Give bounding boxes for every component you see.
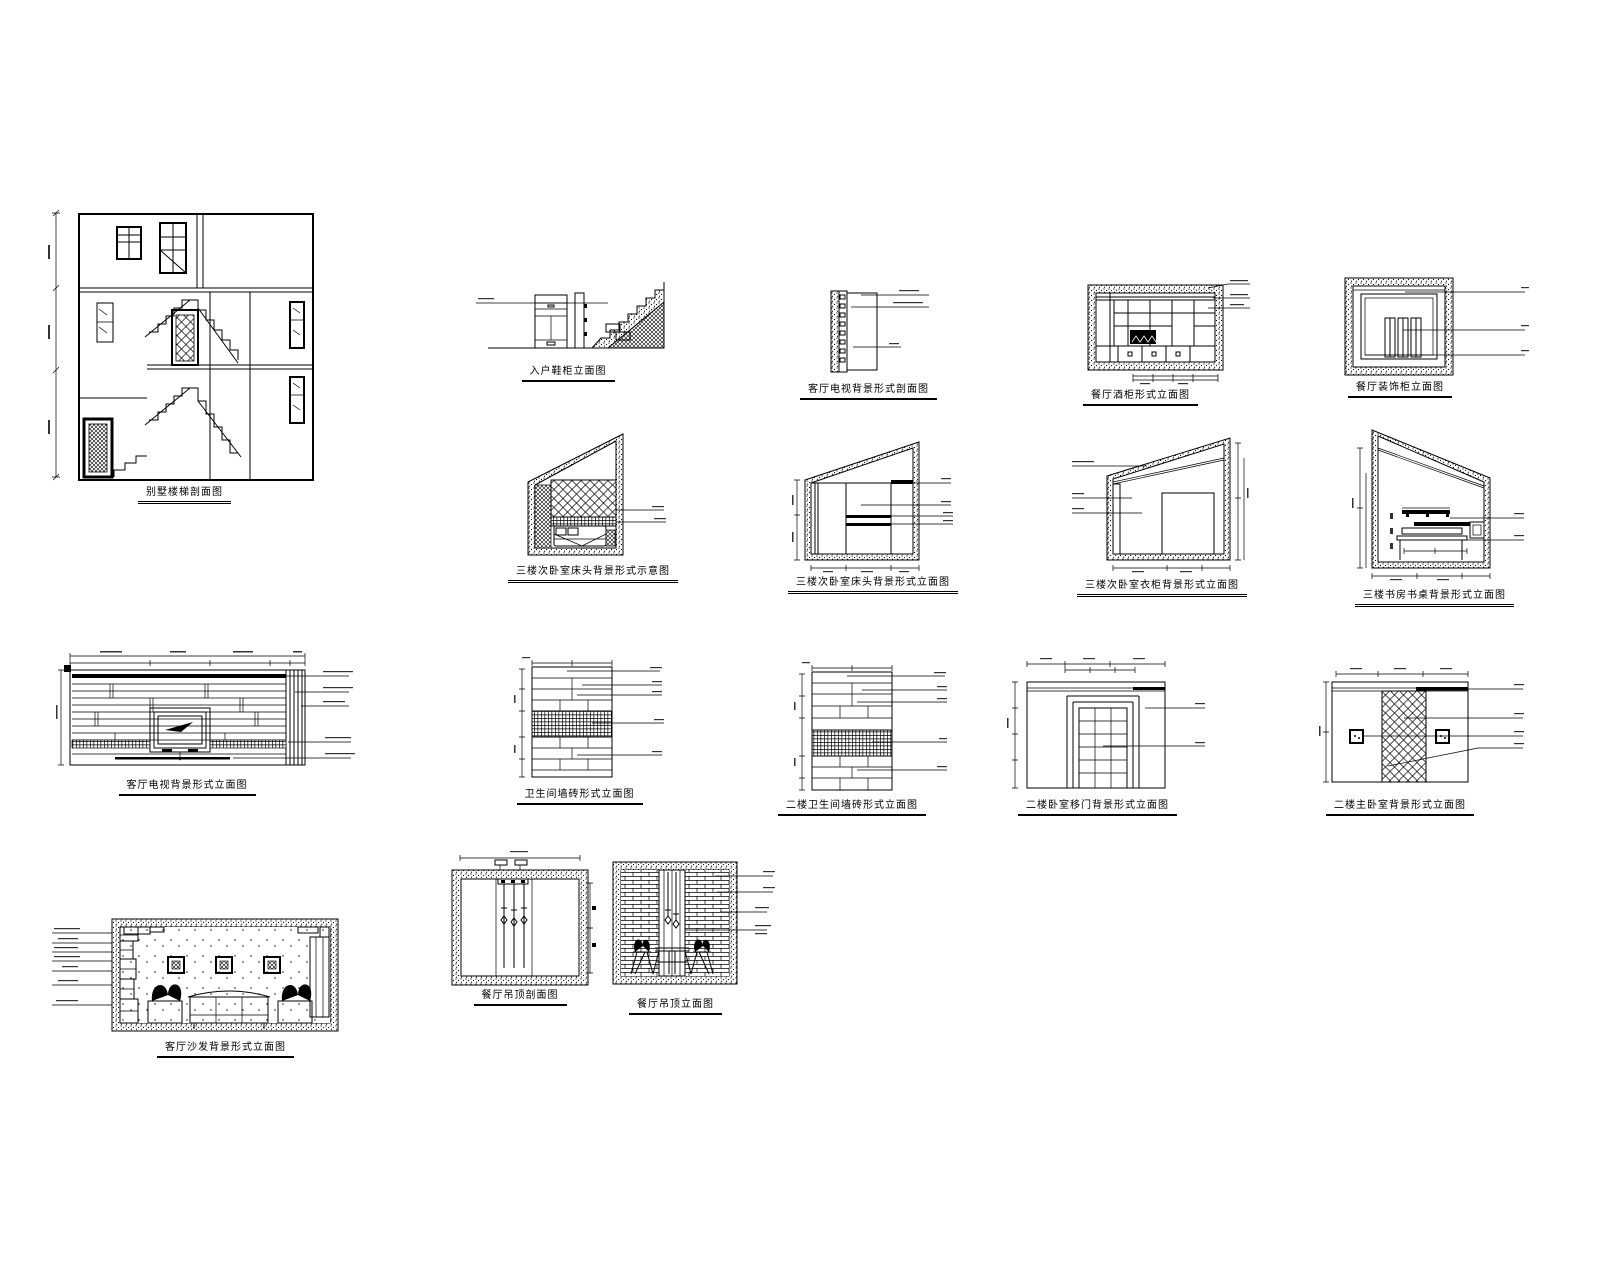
attic-desk-drawing [1342,418,1527,588]
figure-dining-ceiling-section: 餐厅吊顶剖面图 [440,848,600,1006]
mosaic-band [812,730,892,756]
caption-master-lattice: 二楼主卧室背景形式立面图 [1326,800,1474,816]
stair-section-drawing [42,205,327,485]
entry-door [84,419,112,477]
figure-bath-tile-1: 卫生间墙砖形式立面图 [492,655,667,805]
inner-frame-2 [1365,298,1433,355]
curtain [310,937,329,1017]
leader-lines [476,298,608,303]
figure-tv-wall-section: 客厅电视背景形式剖面图 [800,282,937,400]
caption-entry-cabinet: 入户鞋柜立面图 [522,366,615,382]
caption-bedroom-door: 二楼卧室移门背景形式立面图 [1018,800,1177,816]
caption-tv-wall-section: 客厅电视背景形式剖面图 [800,384,937,400]
caption-attic-desk: 三楼书房书桌背景形式立面图 [1355,590,1514,607]
figure-bedroom-door: 二楼卧室移门背景形式立面图 [1005,658,1210,816]
figure-stair-section: 别墅楼梯剖面图 [42,205,327,504]
bath-tile-2-drawing [782,658,952,798]
bedroom-door-drawing [1005,658,1210,798]
sliding-door [1067,696,1139,788]
ceiling-dimension [460,851,580,870]
figure-attic-desk: 三楼书房书桌背景形式立面图 [1342,418,1527,607]
display-niche [1130,330,1156,344]
master-lattice-drawing [1318,668,1528,798]
caption-bath-tile-2: 二楼卫生间墙砖形式立面图 [778,800,926,816]
dimension-lines [48,210,60,480]
top-bar [72,674,286,678]
figure-master-lattice: 二楼主卧室背景形式立面图 [1318,668,1528,816]
figure-attic-headboard: 三楼次卧室床头背景形式立面图 [788,420,958,594]
mosaic-band-right [210,740,286,748]
batten-strip [839,291,847,372]
bed [554,526,615,546]
attic-wall-hatch [1372,430,1490,568]
side-strip [535,485,551,548]
attic-wardrobe-drawing [1072,418,1252,578]
desk [1390,508,1484,560]
wall-lamp-left [1350,730,1363,743]
room-wall-hatch [452,870,588,985]
inner-frame [1361,294,1437,359]
tv-wall-drawing [55,650,365,778]
caption-bath-tile-1: 卫生间墙砖形式立面图 [517,789,643,805]
interior-lines [811,480,913,554]
side-panel [575,293,587,348]
caption-tv-wall: 客厅电视背景形式立面图 [119,780,256,796]
entry-cabinet-drawing [468,272,668,364]
window-right-lower [290,377,304,423]
top-bar [1416,687,1468,691]
bottom-dimension [1133,374,1218,384]
window-mid-left [97,303,113,342]
dimension-lines [1007,658,1165,788]
sofa-wall-drawing [40,905,345,1040]
window-top-big [160,223,186,273]
caption-attic-headboard: 三楼次卧室床头背景形式立面图 [788,577,958,594]
attic-headboard-sketch-drawing [518,422,668,564]
panel-face [847,293,877,370]
stair-mass [592,282,664,348]
floor-lines [79,214,313,480]
figure-bath-tile-2: 二楼卫生间墙砖形式立面图 [778,658,956,816]
mosaic-band [532,711,612,737]
center-niche [659,870,685,976]
caption-stair-section: 别墅楼梯剖面图 [138,487,231,504]
stairs-lower [145,388,241,457]
cabinet-grid [1096,293,1215,362]
mosaic-band-left [72,740,150,748]
pendant-lamps [496,879,532,976]
vertical-slat-column [286,670,302,765]
attic-wall-hatch [805,442,919,560]
leader-lines [1208,280,1250,308]
wallpaper-field [120,927,330,1023]
figure-deco-cabinet: 餐厅装饰柜立面图 [1325,272,1530,398]
caption-dining-ceiling-section: 餐厅吊顶剖面图 [474,990,567,1006]
caption-attic-wardrobe: 三楼次卧室衣柜背景形式立面图 [1077,580,1247,597]
lattice-headboard [551,480,616,517]
figure-attic-wardrobe: 三楼次卧室衣柜背景形式立面图 [1072,418,1252,597]
dining-elevation-drawing [605,852,780,997]
lattice-panel [1382,691,1426,782]
door-mid [172,310,198,365]
caption-dining-elevation: 餐厅吊顶立面图 [629,999,722,1015]
caption-wine-cabinet: 餐厅酒柜形式立面图 [1083,390,1198,406]
wall-lamp-right [1436,730,1449,743]
figure-dining-elevation: 餐厅吊顶立面图 [605,852,780,1015]
leader-lines [851,290,929,347]
wall-hatch [1088,285,1223,370]
wall-hatch [831,291,839,372]
shoe-cabinet [535,295,567,348]
columns [1385,318,1421,357]
caption-attic-headboard-sketch: 三楼次卧室床头背景形式示意图 [508,566,678,583]
attic-wall-hatch [1107,438,1230,560]
dining-ceiling-section-drawing [440,848,600,988]
window-top-left [117,227,141,259]
figure-tv-wall: 客厅电视背景形式立面图 [55,650,365,796]
wine-cabinet-drawing [1058,278,1253,388]
top-bar [1133,687,1165,690]
figure-sofa-wall: 客厅沙发背景形式立面图 [40,905,345,1058]
bath-tile-1-drawing [492,655,667,787]
building-outline [79,214,313,480]
tv-wall-section-drawing [801,282,936,382]
window-right-upper [290,302,304,348]
figure-wine-cabinet: 餐厅酒柜形式立面图 [1058,278,1253,406]
caption-sofa-wall: 客厅沙发背景形式立面图 [157,1042,294,1058]
leader-lines [1103,703,1205,746]
figure-entry-cabinet: 入户鞋柜立面图 [468,272,668,382]
entry-steps [114,456,147,477]
tv [150,708,210,760]
figure-attic-headboard-sketch: 三楼次卧室床头背景形式示意图 [508,422,678,583]
wall-outline [1027,682,1165,788]
mosaic-band [551,517,616,526]
dimension-lines [794,662,892,790]
caption-deco-cabinet: 餐厅装饰柜立面图 [1348,382,1452,398]
shelf-bar [115,757,230,760]
attic-headboard-drawing [791,420,956,575]
deco-cabinet-drawing [1325,272,1530,380]
